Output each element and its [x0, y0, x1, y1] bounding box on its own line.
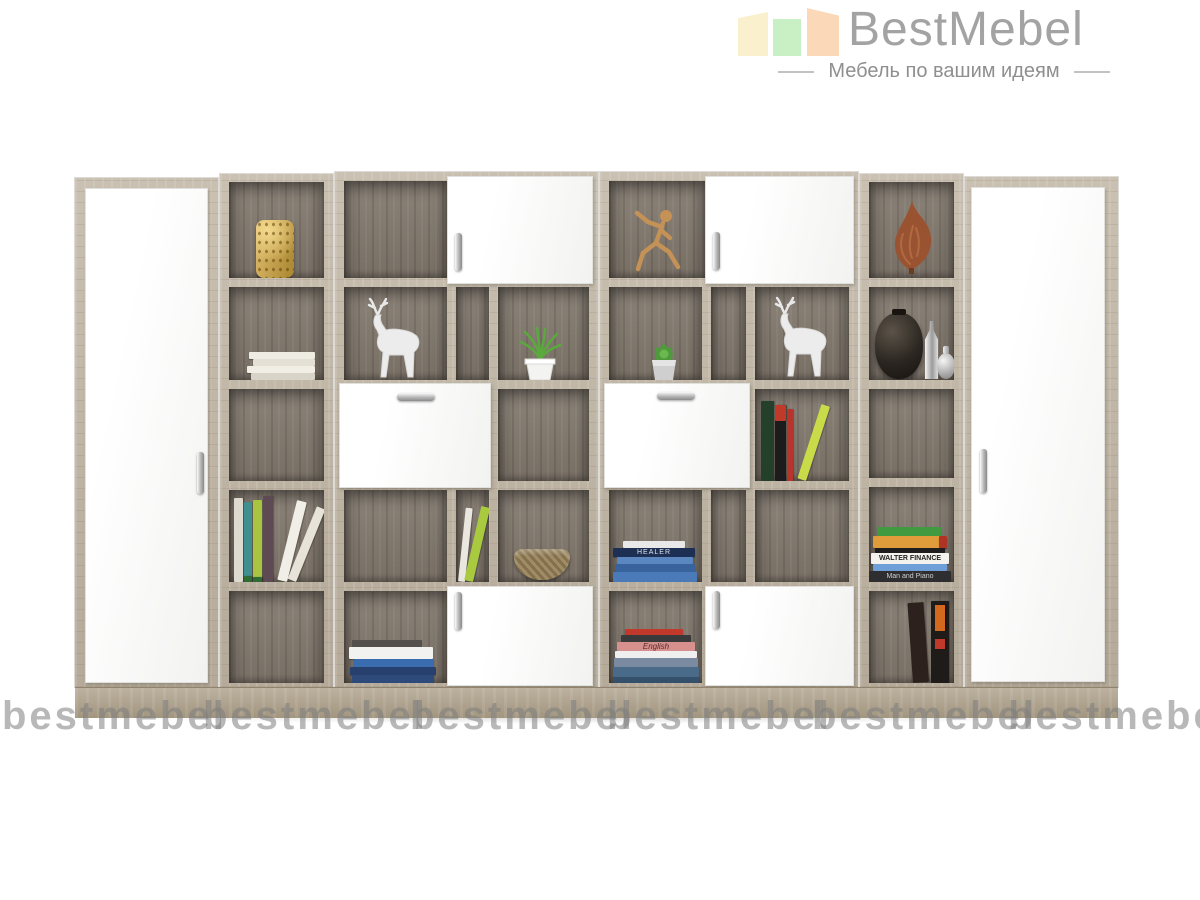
- book: [615, 564, 695, 572]
- cube-c-narrow-bottom: [711, 490, 746, 582]
- cube-b4-left: [344, 490, 447, 582]
- book: [873, 536, 947, 548]
- book: [614, 658, 698, 667]
- watermark: bestmebel: [812, 694, 1037, 739]
- cube-d4: WALTER FINANCE Man and Piano: [869, 487, 954, 582]
- book-spine: [244, 502, 252, 582]
- cube-d1: [869, 182, 954, 278]
- cube-c-runner: [609, 181, 705, 278]
- book-healer: HEALER: [613, 548, 695, 557]
- gold-vase: [256, 220, 294, 278]
- book: [251, 373, 315, 380]
- book-walter: WALTER FINANCE: [871, 553, 949, 564]
- book-label: [935, 639, 945, 649]
- logo-bar-green: [773, 19, 801, 56]
- shelf-column-d: WALTER FINANCE Man and Piano: [860, 174, 963, 687]
- left-wardrobe-door: [85, 188, 208, 683]
- flap-door-c-handle: [657, 392, 695, 400]
- door-c-top: [705, 176, 854, 284]
- door-b-bottom: [447, 586, 593, 686]
- bottle-neck: [943, 346, 949, 354]
- book-spine: [787, 409, 793, 481]
- cube-b5-books: [344, 591, 447, 683]
- cube-d5: [869, 591, 954, 683]
- cube-b-plant: [498, 287, 589, 380]
- book-band: [775, 405, 786, 421]
- cube-c-blue-stack: HEALER: [609, 490, 702, 582]
- cube-a1: [229, 182, 324, 278]
- book: [352, 640, 422, 647]
- cube-d3: [869, 389, 954, 478]
- book: [249, 352, 315, 359]
- watermark: bestmebel: [203, 694, 428, 739]
- book-band: [253, 577, 262, 582]
- cube-c-narrow-top: [711, 287, 746, 380]
- logo-bar-yellow: [738, 12, 768, 56]
- book: [613, 572, 697, 582]
- book-label: [935, 605, 945, 631]
- cube-c5-books: English: [609, 591, 702, 683]
- door-b-top-handle: [455, 233, 462, 271]
- door-b-top: [447, 176, 593, 284]
- deer-figurine: [366, 297, 428, 379]
- silver-round-bottle: [937, 353, 954, 379]
- succulent-plant: [644, 342, 684, 380]
- right-wardrobe-door: [971, 187, 1105, 682]
- book: [354, 659, 434, 667]
- grass-plant: [515, 326, 565, 380]
- cube-c-books-leaning: [755, 389, 849, 481]
- cube-a2: [229, 287, 324, 380]
- door-c-bottom-handle: [713, 591, 720, 629]
- cube-d2: [869, 287, 954, 380]
- brand-tagline: Мебель по вашим идеям: [764, 60, 1124, 83]
- bookcase-wall-unit: HEALER English: [75, 172, 1118, 717]
- book: [617, 557, 693, 564]
- cube-b-mid-right: [498, 389, 589, 481]
- tagline-text: Мебель по вашим идеям: [828, 60, 1059, 83]
- book: [613, 677, 699, 683]
- product-page: BestMebel Мебель по вашим идеям: [0, 0, 1200, 900]
- cube-c-deer: [755, 287, 849, 380]
- book-cap: [939, 536, 947, 548]
- book-band: [244, 576, 252, 582]
- book: [352, 675, 434, 683]
- cube-b-narrow-top: [456, 287, 489, 380]
- door-c-bottom: [705, 586, 854, 686]
- book-spine: [234, 498, 243, 582]
- silver-bottle: [925, 321, 938, 379]
- watermark: bestmebel: [1008, 694, 1200, 739]
- logo-bar-orange: [807, 8, 839, 56]
- cube-b1: [344, 181, 447, 278]
- book-spine: [761, 401, 774, 481]
- tagline-dash-left: [778, 71, 814, 73]
- book-spine-leaning: [797, 404, 830, 481]
- cube-a5: [229, 591, 324, 683]
- watermark: bestmebel: [607, 694, 832, 739]
- shelf-module-b: [335, 172, 598, 687]
- book-man-and-piano: Man and Piano: [869, 571, 951, 582]
- cube-a4: [229, 490, 324, 582]
- book: [873, 564, 947, 571]
- shelf-column-a: [220, 174, 333, 687]
- vase-neck: [892, 309, 906, 315]
- cube-c4-right: [755, 490, 849, 582]
- book-spine: [253, 500, 262, 582]
- tagline-dash-right: [1074, 71, 1110, 73]
- book: [621, 635, 691, 642]
- brand-name: BestMebel: [848, 4, 1084, 56]
- logo-books-icon: [738, 8, 844, 56]
- door-c-top-handle: [713, 232, 720, 270]
- right-wardrobe-handle: [980, 449, 987, 493]
- cube-c-succulent: [609, 287, 702, 380]
- door-b-bottom-handle: [455, 592, 462, 630]
- brand-logo: BestMebel Мебель по вашим идеям: [730, 0, 1130, 90]
- book-english: English: [617, 642, 695, 651]
- flap-door-b-handle: [397, 393, 435, 401]
- shelf-module-c: HEALER English: [600, 172, 858, 687]
- book: [349, 647, 433, 659]
- running-man-figure: [625, 207, 689, 278]
- book: [350, 667, 436, 675]
- flame-coral-sculpture: [886, 198, 938, 274]
- book: [253, 359, 315, 366]
- dark-book: [907, 602, 929, 683]
- book: [877, 527, 941, 536]
- left-wardrobe-handle: [197, 452, 204, 494]
- book: [615, 651, 697, 658]
- cube-b-basket: [498, 490, 589, 582]
- book-spine: [263, 496, 273, 582]
- cube-b-narrow-bottom: [456, 490, 489, 582]
- cube-b-deer: [344, 287, 447, 380]
- watermark: bestmebel: [2, 694, 227, 739]
- book: [613, 667, 699, 677]
- book: [623, 541, 685, 548]
- left-wardrobe: [75, 178, 218, 687]
- cube-a3: [229, 389, 324, 481]
- wicker-bowl: [514, 549, 570, 580]
- watermark: bestmebel: [410, 694, 635, 739]
- deer-figurine: [773, 296, 835, 378]
- right-wardrobe: [965, 177, 1118, 687]
- black-vase: [875, 313, 923, 379]
- book: [247, 366, 315, 373]
